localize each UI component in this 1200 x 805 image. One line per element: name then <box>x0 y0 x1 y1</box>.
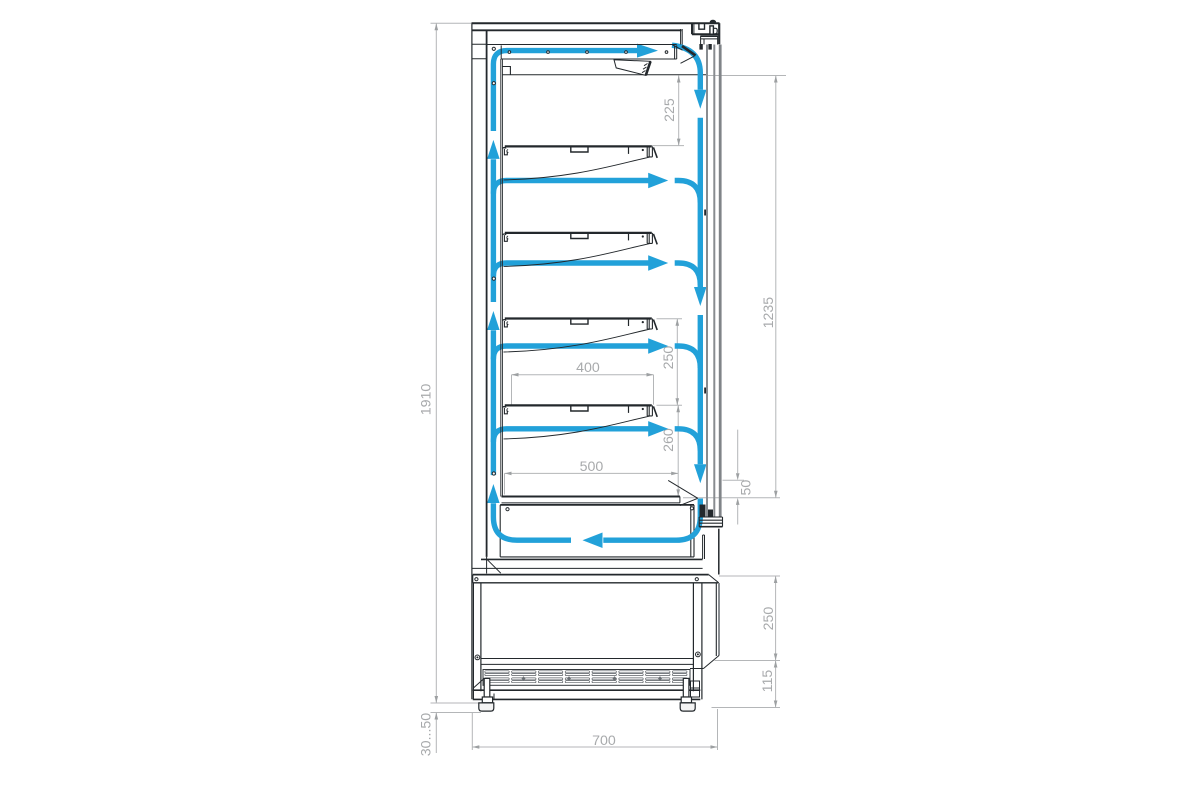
svg-text:250: 250 <box>761 607 777 631</box>
svg-text:30...50: 30...50 <box>418 713 434 756</box>
svg-text:225: 225 <box>662 98 678 122</box>
svg-text:115: 115 <box>760 670 776 693</box>
svg-text:1910: 1910 <box>418 384 434 416</box>
svg-text:1235: 1235 <box>761 297 777 329</box>
svg-text:500: 500 <box>580 459 604 475</box>
svg-text:260: 260 <box>661 428 677 452</box>
svg-text:250: 250 <box>661 346 677 370</box>
svg-text:50: 50 <box>739 480 755 496</box>
svg-text:700: 700 <box>592 733 616 749</box>
svg-text:400: 400 <box>576 360 600 376</box>
